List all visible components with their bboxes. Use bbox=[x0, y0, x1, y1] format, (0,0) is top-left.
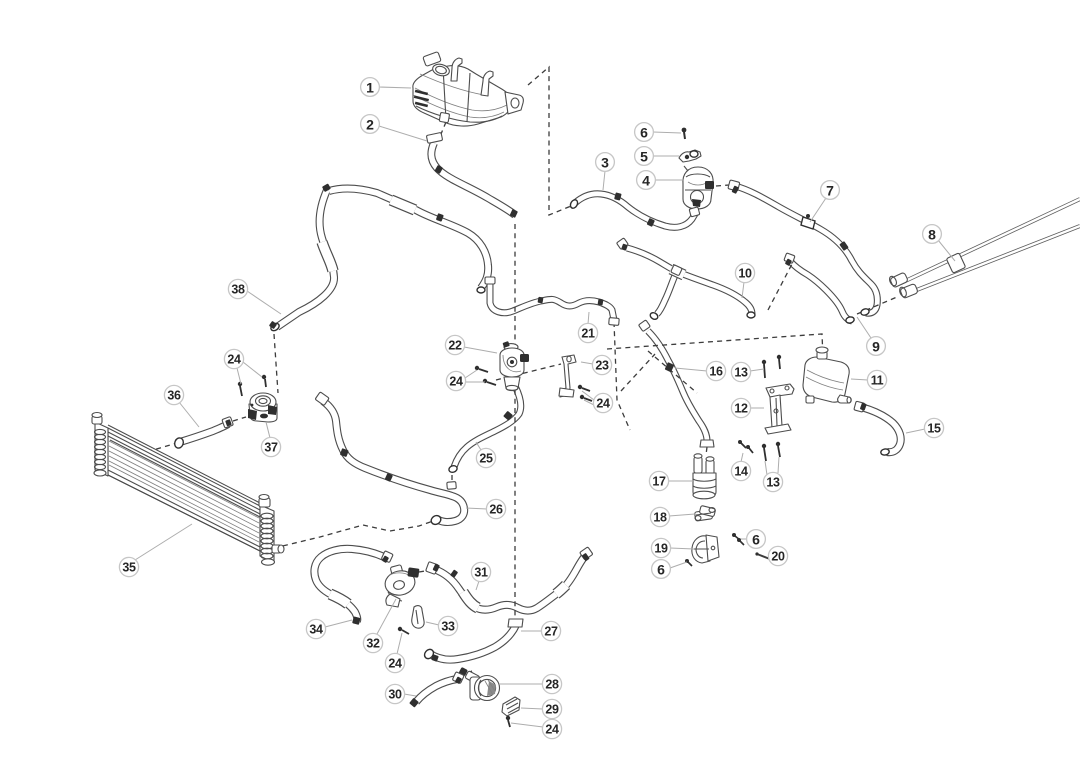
svg-text:24: 24 bbox=[388, 657, 402, 671]
svg-text:15: 15 bbox=[927, 422, 941, 436]
svg-text:23: 23 bbox=[595, 359, 609, 373]
svg-text:29: 29 bbox=[545, 703, 559, 717]
svg-text:6: 6 bbox=[752, 531, 760, 547]
svg-text:32: 32 bbox=[366, 637, 380, 651]
svg-text:26: 26 bbox=[489, 503, 503, 517]
svg-text:7: 7 bbox=[826, 182, 834, 198]
svg-text:2: 2 bbox=[366, 116, 374, 132]
svg-text:25: 25 bbox=[479, 452, 493, 466]
svg-text:34: 34 bbox=[309, 623, 323, 637]
svg-text:13: 13 bbox=[766, 476, 780, 490]
svg-text:11: 11 bbox=[871, 374, 884, 388]
svg-text:21: 21 bbox=[581, 327, 595, 341]
svg-text:13: 13 bbox=[734, 366, 748, 380]
svg-text:38: 38 bbox=[231, 283, 245, 297]
svg-text:3: 3 bbox=[601, 154, 609, 170]
svg-text:33: 33 bbox=[441, 620, 455, 634]
svg-text:31: 31 bbox=[474, 566, 488, 580]
svg-text:6: 6 bbox=[640, 124, 648, 140]
svg-text:27: 27 bbox=[544, 625, 558, 639]
svg-text:36: 36 bbox=[167, 389, 181, 403]
svg-text:4: 4 bbox=[642, 172, 650, 188]
svg-text:30: 30 bbox=[388, 688, 402, 702]
svg-text:6: 6 bbox=[657, 561, 665, 577]
svg-text:22: 22 bbox=[448, 339, 462, 353]
svg-text:28: 28 bbox=[545, 678, 559, 692]
svg-text:37: 37 bbox=[264, 441, 278, 455]
svg-text:20: 20 bbox=[771, 550, 785, 564]
svg-text:1: 1 bbox=[366, 79, 374, 95]
svg-text:35: 35 bbox=[122, 561, 136, 575]
svg-text:24: 24 bbox=[596, 397, 610, 411]
svg-text:19: 19 bbox=[654, 542, 668, 556]
svg-text:16: 16 bbox=[709, 365, 723, 379]
svg-text:14: 14 bbox=[734, 465, 748, 479]
svg-text:5: 5 bbox=[640, 148, 648, 164]
svg-text:24: 24 bbox=[545, 723, 559, 737]
svg-text:10: 10 bbox=[738, 267, 752, 281]
svg-text:12: 12 bbox=[734, 402, 748, 416]
svg-text:9: 9 bbox=[872, 338, 880, 354]
svg-text:24: 24 bbox=[449, 375, 463, 389]
svg-text:17: 17 bbox=[652, 475, 666, 489]
svg-text:18: 18 bbox=[653, 511, 667, 525]
svg-text:24: 24 bbox=[227, 353, 241, 367]
svg-text:8: 8 bbox=[928, 226, 936, 242]
